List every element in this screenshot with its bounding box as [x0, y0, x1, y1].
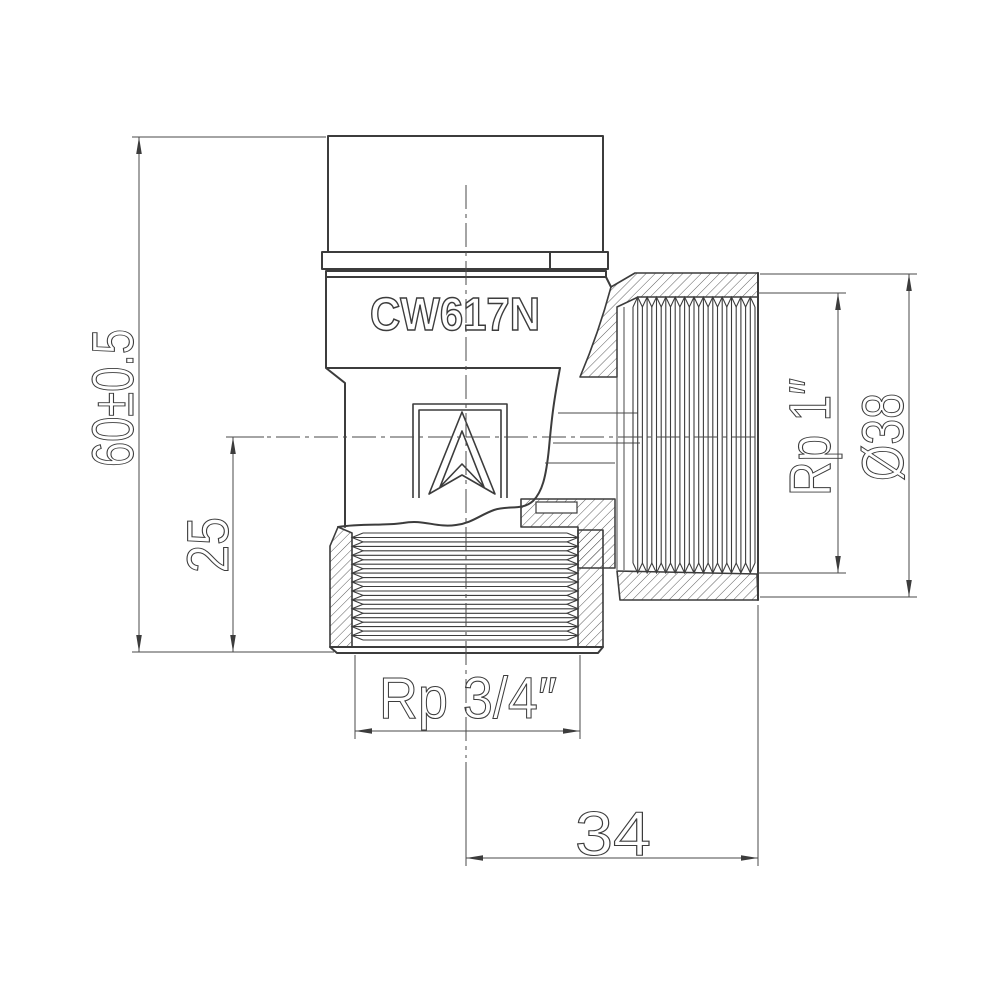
dim-offset-text: 25	[176, 517, 241, 573]
arrowhead	[563, 728, 580, 734]
dim-bottom-thread-text: Rp 3/4″	[379, 666, 557, 731]
arrowhead	[230, 635, 236, 652]
thread-crest-right	[567, 533, 578, 640]
arrowhead	[835, 556, 841, 573]
arrowhead	[906, 274, 912, 291]
labels: CW617N 60±0.5 25 Rp 1″ Ø38 Rp 3/4″ 34	[81, 288, 916, 869]
logo-triangle-outer	[429, 412, 495, 494]
dim-width-text: 34	[575, 800, 651, 869]
logo-bracket-inner	[419, 410, 501, 498]
dim-side-thread-text: Rp 1″	[778, 378, 843, 496]
arrowhead	[136, 635, 142, 652]
bottom-port-left-wall-hatch	[330, 527, 352, 647]
technical-drawing-canvas: CW617N 60±0.5 25 Rp 1″ Ø38 Rp 3/4″ 34	[0, 0, 1000, 1000]
bottom-port-threads	[352, 533, 578, 640]
side-port-threads	[633, 297, 755, 573]
seat-groove	[536, 502, 577, 513]
side-port-bottom-wall-hatch	[617, 571, 758, 600]
arrowhead	[355, 728, 372, 734]
dim-height-text: 60±0.5	[81, 329, 146, 467]
bottom-port-right-wall-hatch	[578, 530, 603, 647]
dim-side-diameter-text: Ø38	[851, 393, 916, 481]
arrowhead	[835, 293, 841, 310]
bore-lines	[545, 413, 640, 463]
arrowhead	[136, 137, 142, 154]
thread-crest-left	[352, 533, 363, 640]
cap-flange	[322, 252, 608, 269]
arrowhead	[466, 855, 483, 861]
arrowhead	[741, 855, 758, 861]
material-marking-text: CW617N	[370, 288, 540, 340]
arrowhead	[906, 580, 912, 597]
brand-logo-icon	[413, 404, 507, 498]
logo-triangle-inner	[440, 431, 484, 487]
drawing-page: CW617N 60±0.5 25 Rp 1″ Ø38 Rp 3/4″ 34	[0, 0, 1000, 1000]
arrowhead	[230, 437, 236, 454]
